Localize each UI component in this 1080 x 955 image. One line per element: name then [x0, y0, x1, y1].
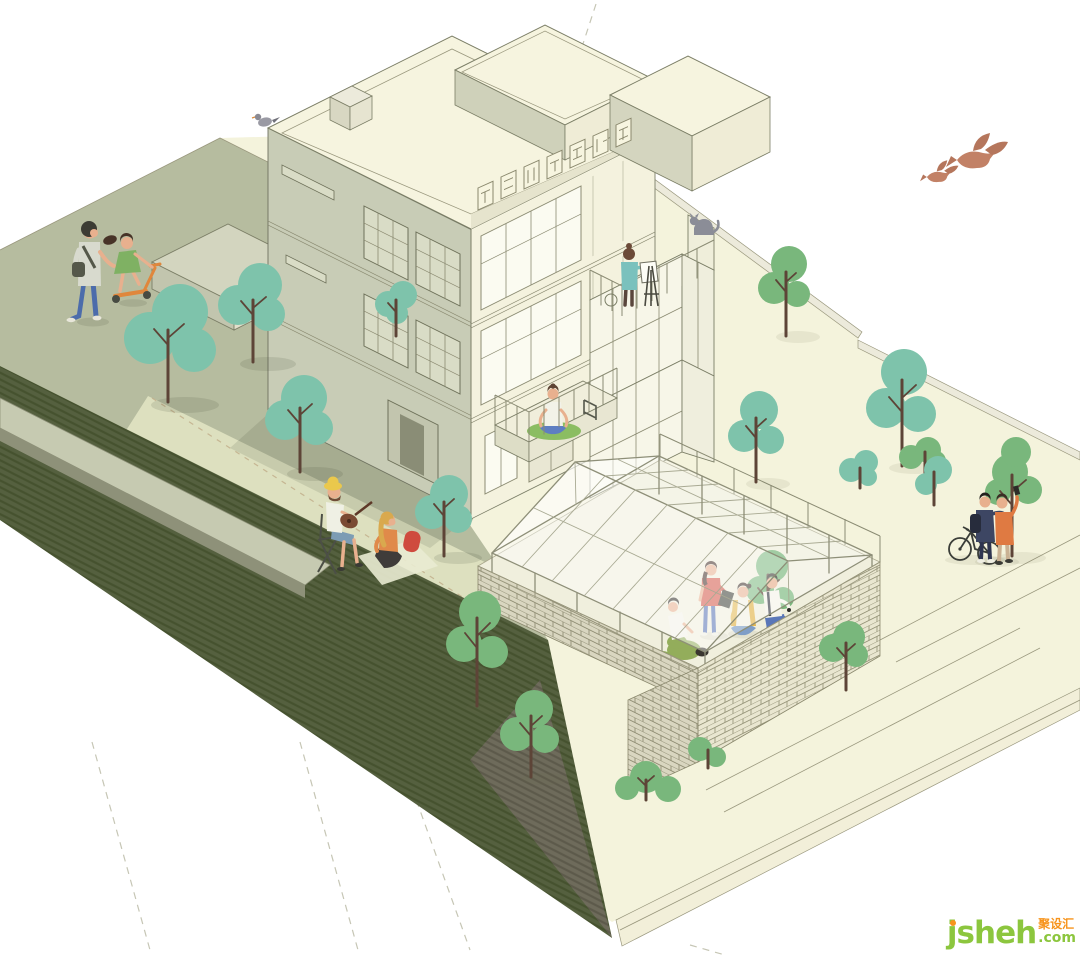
watermark-logo: jsheh 聚设汇 .com	[947, 918, 1076, 949]
illustration-canvas	[0, 0, 1080, 955]
watermark-cjk: 聚设汇	[1038, 918, 1076, 930]
illustration-page: jsheh 聚设汇 .com	[0, 0, 1080, 955]
j-dot	[950, 920, 956, 926]
flying-birds	[920, 133, 1008, 182]
watermark-tld: .com	[1038, 931, 1076, 945]
watermark-brand: jsheh	[947, 918, 1036, 949]
